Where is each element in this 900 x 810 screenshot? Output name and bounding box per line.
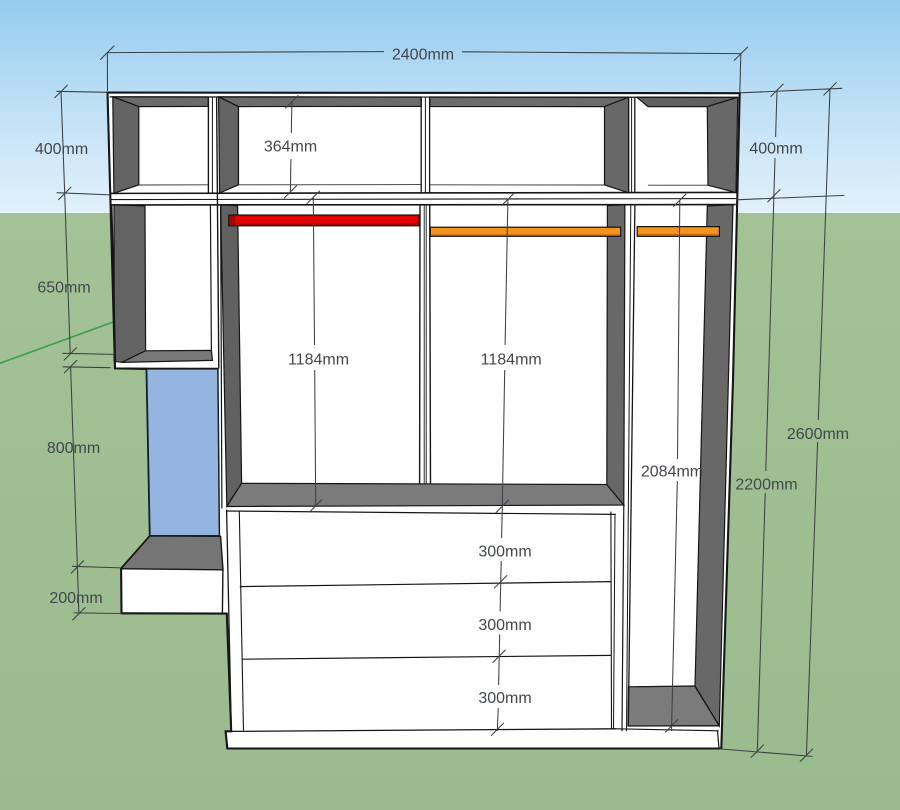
svg-text:1184mm: 1184mm xyxy=(288,351,349,368)
svg-text:800mm: 800mm xyxy=(47,440,100,457)
svg-text:400mm: 400mm xyxy=(35,141,88,158)
svg-text:200mm: 200mm xyxy=(49,590,102,607)
svg-text:2200mm: 2200mm xyxy=(735,477,797,494)
svg-text:364mm: 364mm xyxy=(264,138,317,155)
svg-text:300mm: 300mm xyxy=(478,690,531,707)
svg-text:2400mm: 2400mm xyxy=(392,46,454,63)
svg-text:650mm: 650mm xyxy=(37,280,90,297)
svg-text:300mm: 300mm xyxy=(478,543,531,560)
svg-text:1184mm: 1184mm xyxy=(481,352,542,369)
svg-text:300mm: 300mm xyxy=(478,617,531,634)
svg-text:400mm: 400mm xyxy=(749,141,802,158)
svg-text:2084mm: 2084mm xyxy=(641,464,703,481)
svg-text:2600mm: 2600mm xyxy=(787,426,849,443)
